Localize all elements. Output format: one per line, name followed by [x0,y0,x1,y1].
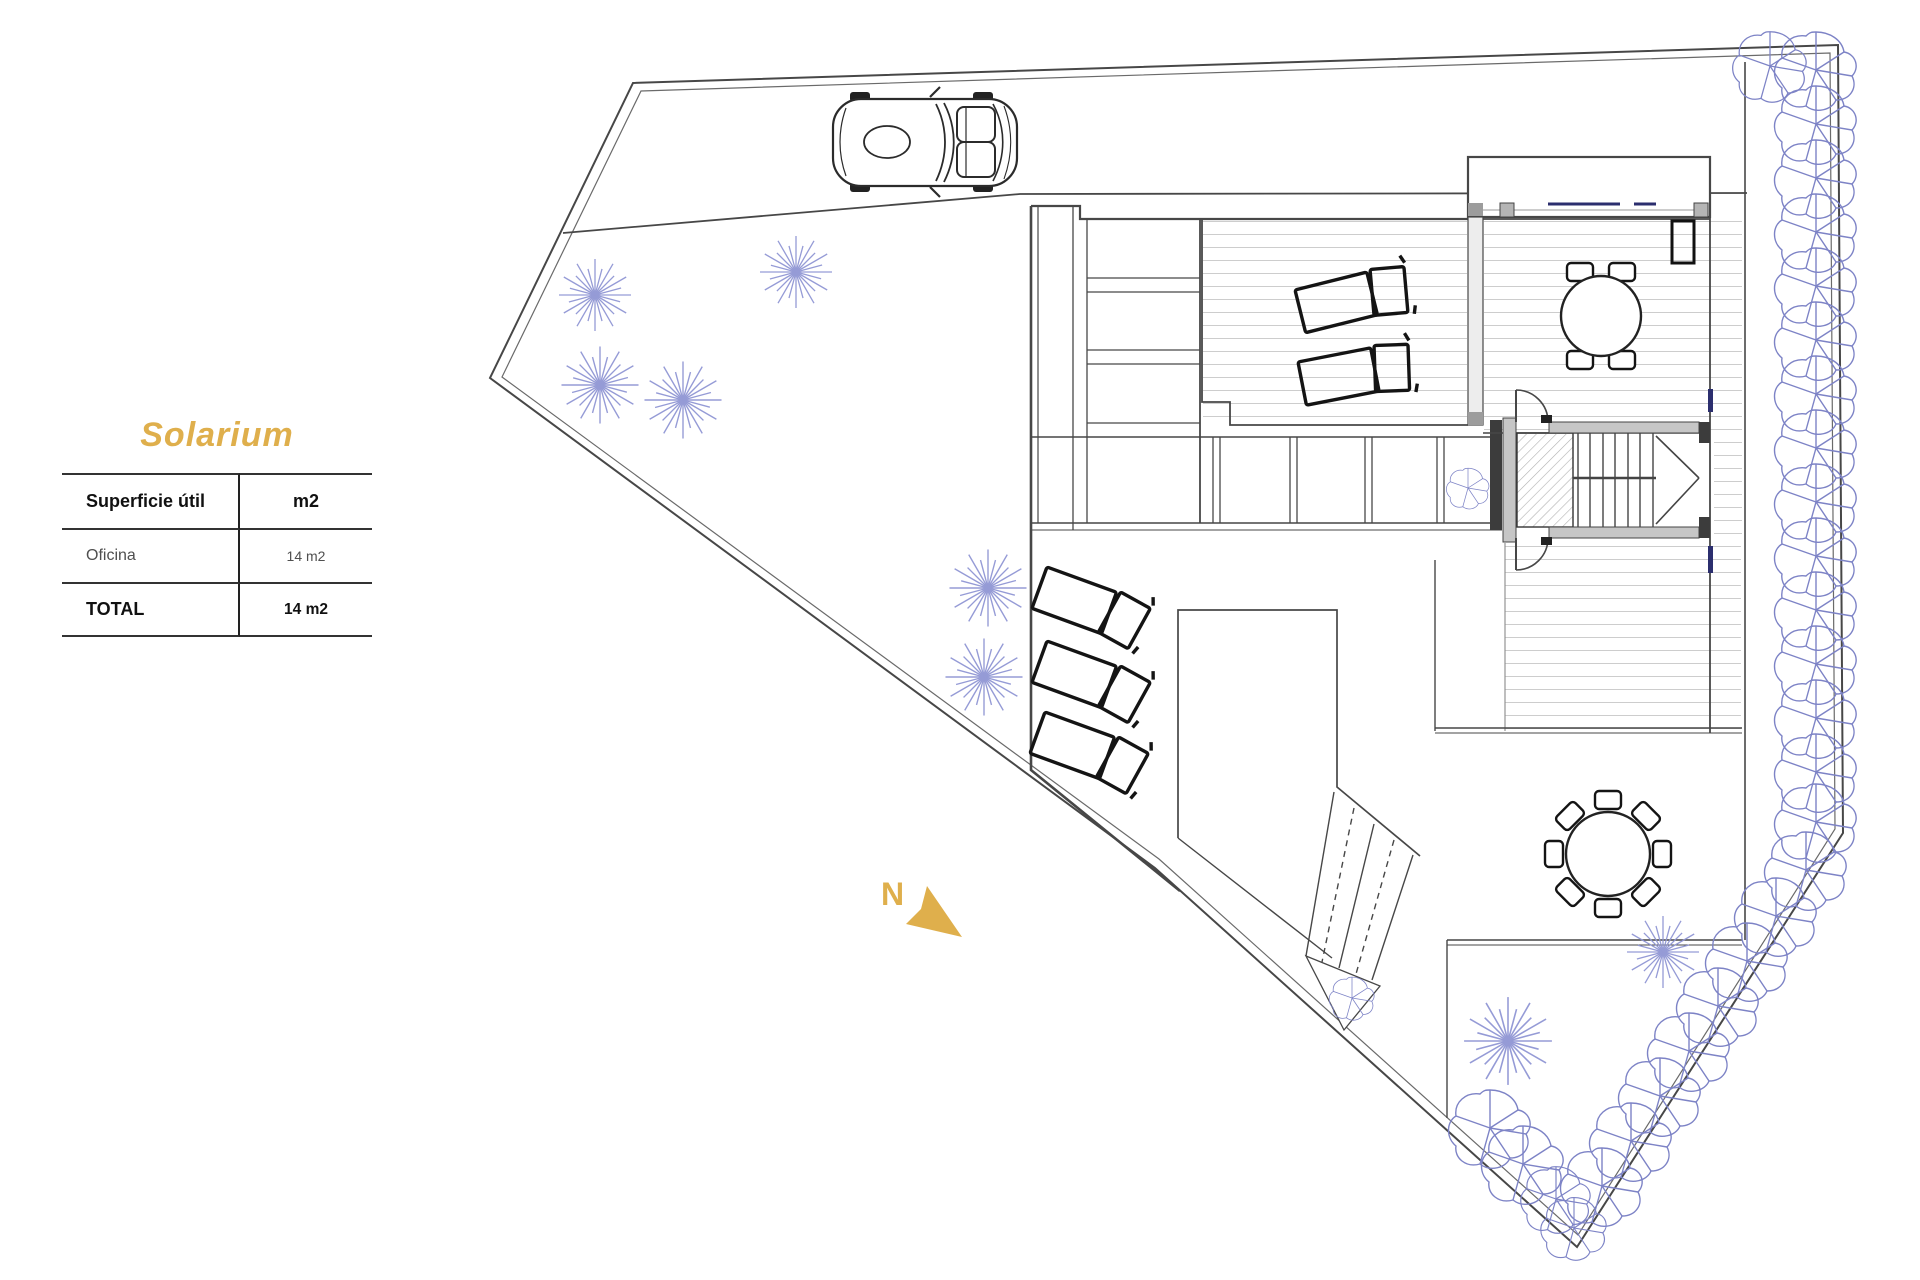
tree [1464,997,1552,1085]
glazing-mark [1708,389,1713,412]
table-header-concept: Superficie útil [62,473,240,530]
site-plan-drawing: N [0,0,1920,1280]
round-table-8-chairs [1545,791,1671,917]
table-total-label: TOTAL [62,584,240,637]
north-label: N [881,876,904,912]
dining-table [1561,263,1641,369]
building [1031,157,1742,1118]
car [833,87,1017,197]
glazing-mark [1708,546,1713,573]
tree [561,346,638,423]
bush [1482,1126,1564,1204]
bush [1561,1148,1643,1226]
pergola-overhang [1468,157,1710,217]
table-total-area: 14 m2 [240,584,372,637]
sun-lounger [1027,704,1154,799]
table-header-m2: m2 [240,473,372,530]
garden-steps [1306,792,1413,980]
tree [1627,916,1699,988]
central-terrace [1178,610,1420,1030]
storage-row [1031,420,1502,530]
tree [559,259,631,331]
garden-boundary [1447,940,1742,1118]
north-arrow: N [881,876,962,937]
table-row-area: 14 m2 [240,530,372,584]
area-table: Superficie útil m2 Oficina 14 m2 TOTAL 1… [62,473,372,637]
bush [1733,32,1806,102]
tree [644,361,721,438]
staircase-treads [1573,433,1699,527]
table-row-concept: Oficina [62,530,240,584]
page-title: Solarium [62,416,372,455]
north-arrow-icon [906,886,962,937]
shaft-hatch [1517,433,1573,527]
site-plan-page: N Solarium Superficie útil m2 Oficina 14… [0,0,1920,1280]
tree [945,638,1022,715]
tree [949,549,1026,626]
bush [1446,468,1488,509]
tree [760,236,832,308]
rooms-column [1087,219,1200,523]
